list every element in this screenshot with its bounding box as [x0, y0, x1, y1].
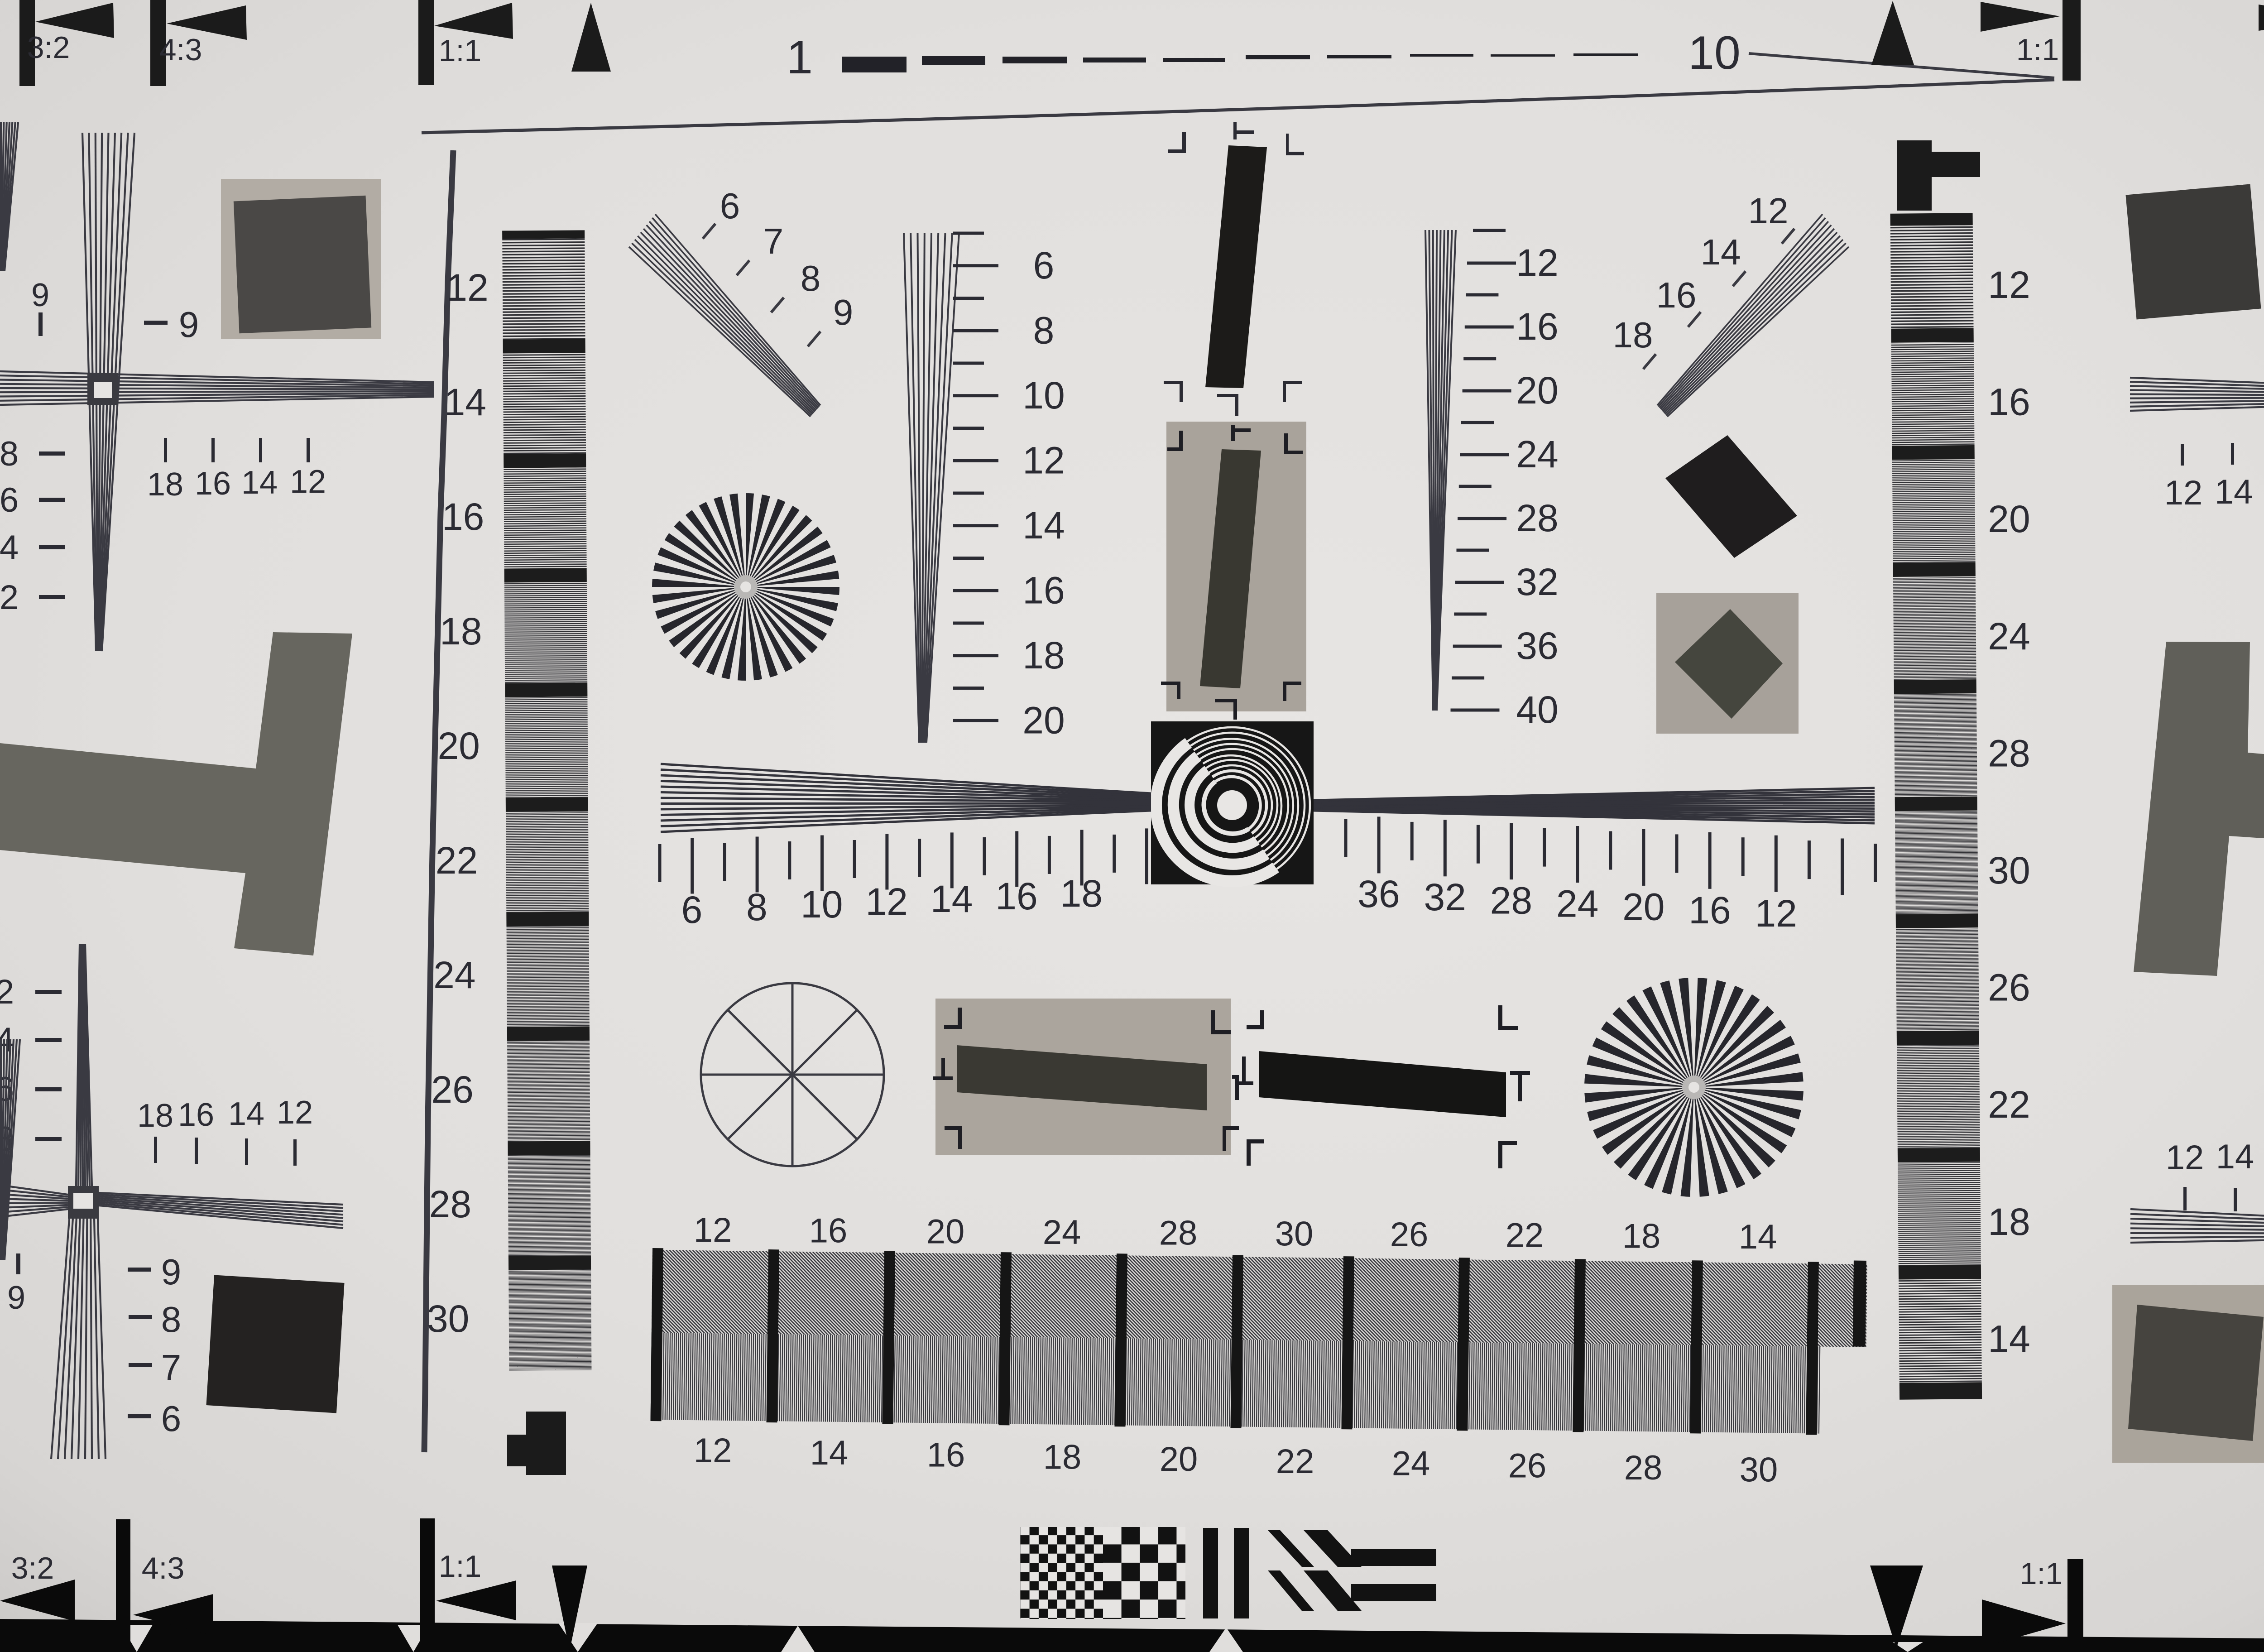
- svg-text:12: 12: [865, 880, 907, 923]
- svg-text:26: 26: [431, 1068, 473, 1111]
- svg-text:12: 12: [446, 266, 488, 309]
- svg-text:28: 28: [1516, 497, 1558, 539]
- svg-text:26: 26: [1988, 966, 2030, 1009]
- svg-text:14: 14: [1739, 1218, 1777, 1256]
- svg-text:32: 32: [1424, 876, 1466, 918]
- svg-text:24: 24: [1988, 615, 2030, 658]
- svg-text:1:1: 1:1: [439, 1549, 482, 1584]
- svg-text:3:2: 3:2: [11, 1551, 54, 1585]
- svg-text:2: 2: [0, 578, 19, 617]
- svg-text:3:2: 3:2: [27, 30, 70, 65]
- svg-text:18: 18: [1988, 1201, 2030, 1243]
- svg-text:22: 22: [436, 839, 478, 882]
- svg-text:12: 12: [2166, 1138, 2204, 1177]
- svg-text:14: 14: [1022, 504, 1065, 547]
- svg-text:18: 18: [1622, 1217, 1661, 1255]
- svg-text:8: 8: [801, 258, 821, 298]
- svg-text:1: 1: [787, 31, 813, 84]
- svg-text:16: 16: [1516, 305, 1558, 348]
- svg-text:20: 20: [437, 725, 480, 767]
- svg-text:7: 7: [161, 1347, 182, 1388]
- svg-text:18: 18: [1043, 1438, 1082, 1476]
- svg-text:18: 18: [440, 610, 482, 653]
- svg-text:18: 18: [1022, 634, 1065, 677]
- svg-text:22: 22: [1988, 1083, 2030, 1126]
- svg-text:12: 12: [1022, 439, 1065, 482]
- svg-text:28: 28: [1624, 1449, 1663, 1487]
- svg-text:1:1: 1:1: [2016, 33, 2059, 67]
- svg-text:12: 12: [1516, 241, 1558, 284]
- svg-text:12: 12: [1988, 264, 2030, 306]
- svg-text:20: 20: [1022, 699, 1065, 742]
- svg-text:14: 14: [810, 1434, 849, 1472]
- svg-text:9: 9: [833, 292, 854, 332]
- svg-text:28: 28: [1988, 732, 2030, 774]
- svg-text:10: 10: [1022, 374, 1065, 417]
- svg-text:28: 28: [1490, 879, 1532, 922]
- svg-text:12: 12: [1748, 191, 1789, 231]
- svg-text:8: 8: [161, 1299, 182, 1340]
- svg-text:6: 6: [0, 481, 19, 519]
- svg-text:16: 16: [1988, 381, 2030, 423]
- svg-text:16: 16: [995, 875, 1037, 917]
- svg-text:18: 18: [1613, 315, 1653, 355]
- svg-text:16: 16: [927, 1436, 965, 1474]
- svg-text:26: 26: [1390, 1215, 1429, 1254]
- svg-text:30: 30: [1740, 1451, 1778, 1489]
- svg-text:9: 9: [179, 304, 199, 345]
- svg-text:14: 14: [2216, 1138, 2254, 1176]
- svg-text:10: 10: [801, 883, 843, 926]
- svg-text:18: 18: [147, 466, 183, 503]
- svg-text:10: 10: [1688, 27, 1741, 79]
- svg-text:26: 26: [1508, 1446, 1547, 1485]
- svg-text:28: 28: [429, 1183, 471, 1225]
- svg-text:30: 30: [1275, 1215, 1314, 1253]
- svg-text:6: 6: [720, 186, 740, 226]
- svg-text:16: 16: [1688, 889, 1731, 932]
- svg-text:22: 22: [1506, 1216, 1544, 1255]
- svg-text:4: 4: [0, 528, 19, 567]
- svg-text:16: 16: [195, 466, 231, 502]
- svg-text:14: 14: [241, 465, 278, 501]
- svg-text:20: 20: [1516, 369, 1558, 412]
- svg-text:14: 14: [444, 381, 486, 423]
- svg-text:24: 24: [1043, 1213, 1081, 1252]
- svg-text:14: 14: [2215, 473, 2253, 511]
- svg-text:9: 9: [31, 277, 49, 313]
- svg-text:16: 16: [442, 495, 484, 538]
- svg-text:4:3: 4:3: [159, 33, 202, 67]
- svg-text:12: 12: [277, 1095, 313, 1131]
- svg-text:18: 18: [137, 1098, 173, 1134]
- svg-text:1:1: 1:1: [439, 34, 482, 68]
- svg-text:24: 24: [433, 954, 475, 996]
- svg-text:6: 6: [161, 1398, 182, 1439]
- svg-text:20: 20: [926, 1212, 965, 1251]
- svg-text:24: 24: [1392, 1445, 1430, 1483]
- svg-text:12: 12: [290, 464, 326, 500]
- svg-text:18: 18: [1060, 872, 1103, 915]
- svg-text:30: 30: [1988, 849, 2030, 892]
- svg-text:7: 7: [763, 221, 784, 261]
- svg-text:12: 12: [694, 1211, 732, 1249]
- svg-text:28: 28: [1159, 1214, 1198, 1253]
- svg-text:9: 9: [7, 1280, 25, 1316]
- svg-text:16: 16: [809, 1212, 848, 1250]
- svg-text:40: 40: [1516, 688, 1558, 731]
- svg-text:6: 6: [1033, 244, 1055, 287]
- svg-text:16: 16: [1656, 275, 1697, 315]
- svg-text:36: 36: [1357, 873, 1400, 915]
- svg-text:22: 22: [1276, 1442, 1314, 1481]
- svg-text:24: 24: [1556, 883, 1598, 925]
- svg-text:36: 36: [1516, 624, 1558, 667]
- svg-text:12: 12: [1755, 892, 1797, 935]
- svg-text:8: 8: [1033, 309, 1055, 352]
- svg-text:1:1: 1:1: [2020, 1556, 2063, 1591]
- svg-text:12: 12: [694, 1431, 732, 1470]
- svg-text:12: 12: [2164, 474, 2203, 512]
- svg-text:16: 16: [1022, 569, 1065, 612]
- svg-text:20: 20: [1988, 498, 2030, 540]
- svg-text:8: 8: [0, 435, 19, 473]
- svg-text:20: 20: [1160, 1440, 1198, 1479]
- svg-text:2: 2: [0, 973, 14, 1011]
- svg-text:32: 32: [1516, 561, 1558, 603]
- svg-text:8: 8: [746, 886, 767, 928]
- svg-text:30: 30: [427, 1297, 469, 1340]
- svg-text:14: 14: [1988, 1317, 2030, 1360]
- svg-text:14: 14: [228, 1096, 264, 1132]
- svg-text:14: 14: [1701, 232, 1741, 272]
- svg-text:9: 9: [161, 1252, 182, 1292]
- svg-text:24: 24: [1516, 433, 1558, 475]
- svg-text:6: 6: [681, 888, 703, 931]
- svg-text:4:3: 4:3: [142, 1551, 185, 1585]
- svg-text:16: 16: [178, 1097, 214, 1133]
- svg-text:14: 14: [931, 878, 973, 920]
- svg-text:20: 20: [1622, 886, 1664, 928]
